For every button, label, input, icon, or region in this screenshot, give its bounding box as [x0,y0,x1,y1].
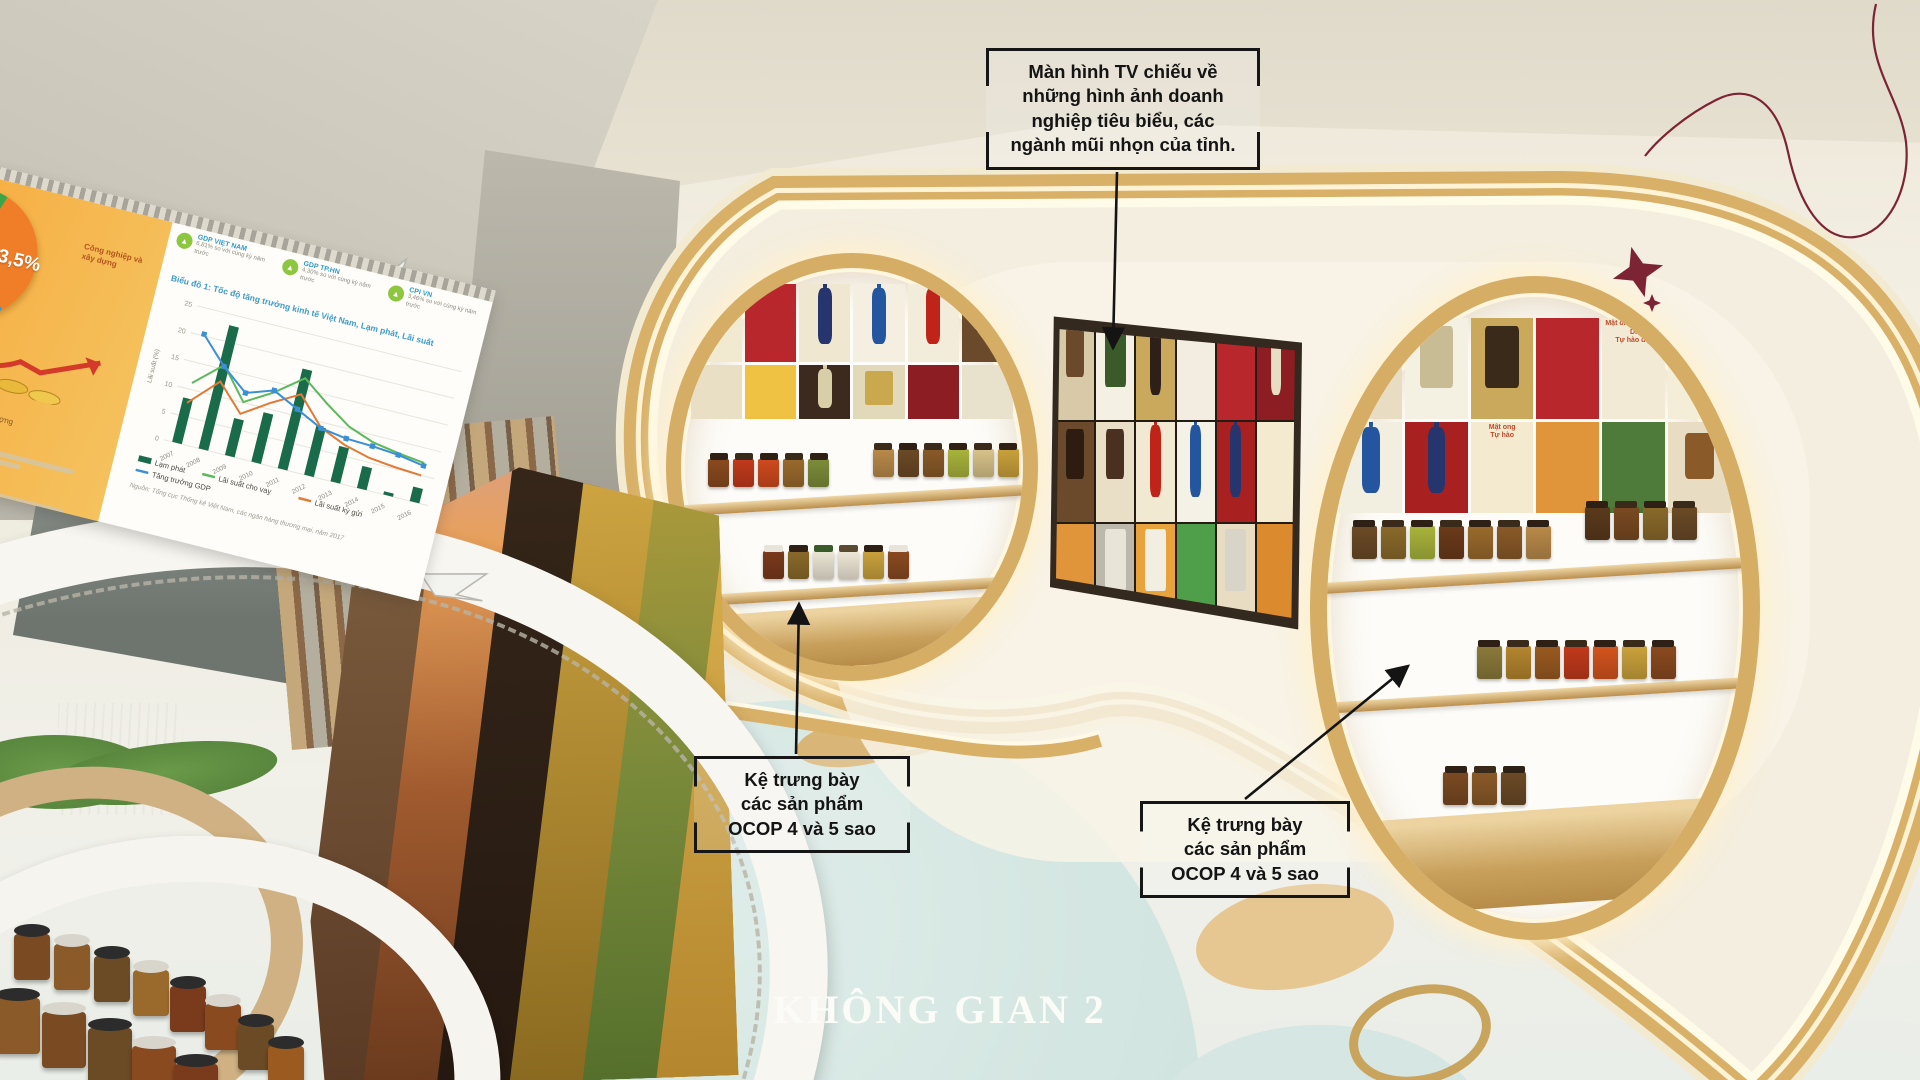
collage-tile [1602,422,1665,514]
page-title: KHÔNG GIAN 2 [760,986,1120,1034]
bottle-icon [818,369,832,408]
product-jar [1410,526,1435,559]
poster-collage: Mật ong Phương Di Tự hào đạt [691,284,1013,419]
shelf-board [1310,556,1759,594]
poster-text: Mật ong Phương Di Tự hào đạt [1602,318,1665,347]
product-jar [808,459,829,487]
poster-collage: Mật ong Phương Di Tự hào đạtMật ong Tự h… [1339,318,1730,513]
callout-shelf-right-label: Kệ trưng bày các sản phẩm OCOP 4 và 5 sa… [1140,801,1350,898]
pack-icon [1105,529,1126,591]
jar-row [763,551,909,579]
jar-row [873,449,1019,477]
product-jar [973,449,994,477]
tv-screen [1056,320,1295,624]
product-jar [1468,526,1493,559]
product-jar [763,551,784,579]
collage-tile: Mật ong Tự hào [1471,422,1534,514]
product-jar [1352,526,1377,559]
collage-tile [1405,318,1468,418]
collage-tile [1096,320,1134,420]
shelf-board [1310,676,1759,714]
collage-tile [1536,422,1599,514]
pack-icon [1225,529,1246,591]
collage-tile [1339,318,1402,418]
jar-icon [1685,433,1714,479]
bottle-icon [1690,323,1708,395]
collage-tile [1668,318,1731,418]
product-jar [1593,646,1618,679]
jar-row [1352,526,1551,559]
collage-tile [962,284,1013,362]
callout-tv-label: Màn hình TV chiếu về những hình ảnh doan… [986,48,1260,170]
collage-tile [1177,320,1215,420]
bottle-icon [1150,425,1161,497]
product-jar [1501,772,1526,805]
product-jar [873,449,894,477]
bottle-icon [926,288,940,344]
jar-icon [1106,429,1124,479]
pack-icon [865,371,893,405]
product-jar [1477,646,1502,679]
bottle-icon [818,288,832,344]
collage-tile [908,365,959,420]
poster-text: Mật ong Tự hào [1487,422,1518,443]
product-jar [1497,526,1522,559]
collage-tile [745,284,796,362]
collage-tile [1217,422,1255,522]
collage-tile [1136,320,1174,420]
product-jar [863,551,884,579]
product-jar [888,551,909,579]
product-jar [923,449,944,477]
product-jar [1622,646,1647,679]
shelf-board [667,484,1036,518]
collage-tile [853,365,904,420]
pack-icon [1145,529,1166,591]
product-jar [1672,507,1697,540]
jar-row [1477,646,1676,679]
bottle-icon [1150,323,1161,395]
pack-icon [1485,326,1519,388]
product-jar [1614,507,1639,540]
jar-icon [1356,329,1385,379]
collage-tile [853,284,904,362]
collage-tile [1217,524,1255,624]
product-jar [898,449,919,477]
jar-row [1585,507,1697,540]
product-jar [998,449,1019,477]
pack-icon [1105,325,1126,387]
product-jar [1651,646,1676,679]
bottle-icon [1190,425,1201,497]
bottle-icon [872,288,886,344]
collage-tile [745,365,796,420]
product-jar [758,459,779,487]
jar-icon [1066,327,1084,377]
collage-tile [799,284,850,362]
product-jar [1443,772,1468,805]
collage-tile [962,365,1013,420]
product-jar [708,459,729,487]
collage-tile [799,365,850,420]
product-jar [838,551,859,579]
product-jar [1439,526,1464,559]
product-jar [1535,646,1560,679]
collage-tile [1136,422,1174,522]
bottle-icon [1362,427,1380,493]
product-jar [733,459,754,487]
collage-tile [1405,422,1468,514]
jar-row [1443,772,1526,805]
collage-tile [1668,422,1731,514]
tv-screen-frame [1050,310,1302,636]
collage-tile [1536,318,1599,418]
product-jar [1585,507,1610,540]
product-jar [783,459,804,487]
collage-tile [1257,524,1295,624]
collage-tile [1339,422,1402,514]
collage-tile [1056,320,1094,420]
collage-tile [1177,422,1215,522]
callout-shelf-left-label: Kệ trưng bày các sản phẩm OCOP 4 và 5 sa… [694,756,910,853]
scene-root: Mật ong Phương Di Tự hào đạt Mật ong Phư… [0,0,1920,1080]
product-jar [1526,526,1551,559]
product-jar [1506,646,1531,679]
jar-row [708,459,829,487]
collage-tile [1257,422,1295,522]
product-jar [788,551,809,579]
product-jar [948,449,969,477]
product-jar [1472,772,1497,805]
display-niche-right: Mật ong Phương Di Tự hào đạtMật ong Tự h… [1310,276,1760,940]
jar-icon [975,293,998,332]
collage-tile [1096,422,1134,522]
collage-tile: Mật ong Phương Di Tự hào đạt [1602,318,1665,418]
bottle-icon [1428,427,1446,493]
collage-tile [1177,524,1215,624]
collage-tile [1056,422,1094,522]
product-jar [813,551,834,579]
poster-text: Mật ong Phương Di Tự hào đạt [691,284,742,313]
product-jar [1643,507,1668,540]
pack-icon [1420,326,1454,388]
collage-tile [691,365,742,420]
collage-tile: Mật ong Phương Di Tự hào đạt [691,284,742,362]
product-jar [1381,526,1406,559]
collage-tile [908,284,959,362]
display-niche-left: Mật ong Phương Di Tự hào đạt [666,253,1038,681]
jar-icon [1066,429,1084,479]
collage-tile [1471,318,1534,418]
bottle-icon [1230,425,1241,497]
product-jar [1564,646,1589,679]
